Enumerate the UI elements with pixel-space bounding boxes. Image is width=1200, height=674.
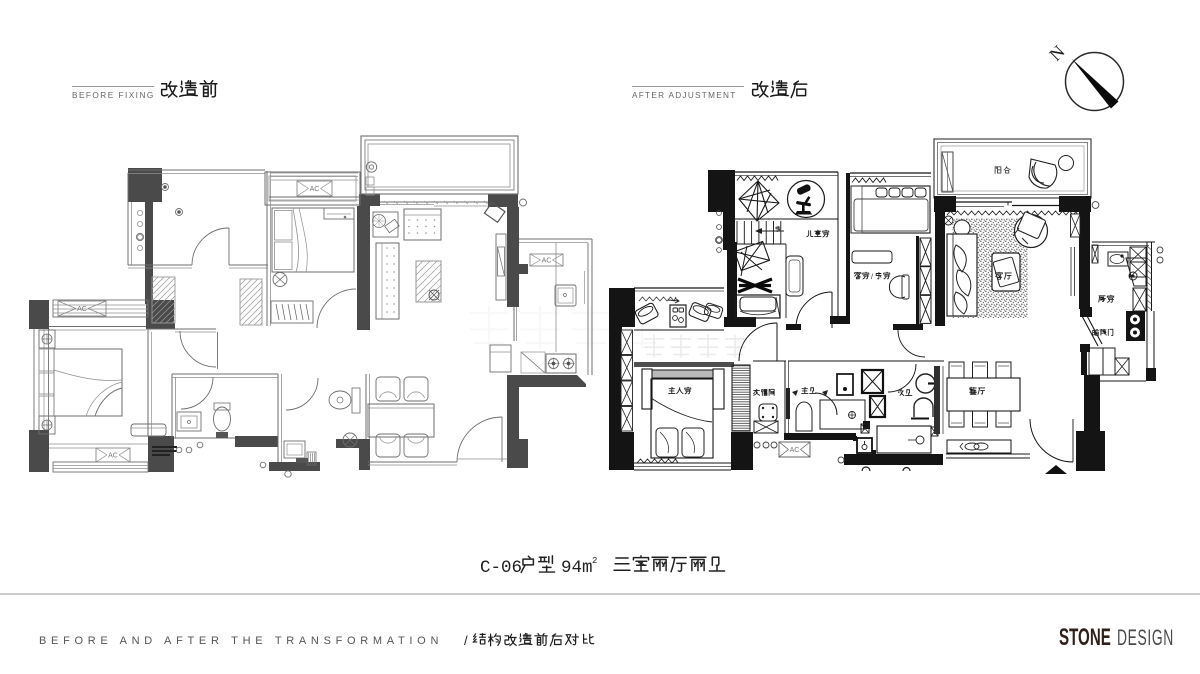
svg-text:AC: AC bbox=[108, 453, 118, 460]
svg-text:AFTER ADJUSTMENT: AFTER ADJUSTMENT bbox=[632, 91, 737, 100]
svg-text:BEFORE FIXING: BEFORE FIXING bbox=[72, 91, 155, 100]
svg-text:2: 2 bbox=[592, 556, 597, 566]
svg-text:94m: 94m bbox=[561, 558, 593, 578]
svg-text:AC: AC bbox=[77, 306, 87, 313]
svg-text:STONE: STONE bbox=[1059, 625, 1111, 651]
svg-text:AC: AC bbox=[542, 258, 552, 265]
svg-text:BEFORE AND AFTER THE TRANSFORM: BEFORE AND AFTER THE TRANSFORMATION bbox=[39, 635, 443, 647]
svg-text:C-06: C-06 bbox=[480, 558, 522, 578]
svg-text:AC: AC bbox=[310, 186, 320, 193]
svg-text:AC: AC bbox=[790, 447, 800, 454]
svg-text:DESIGN: DESIGN bbox=[1117, 625, 1174, 650]
svg-text:/: / bbox=[464, 633, 468, 648]
svg-text:/: / bbox=[871, 274, 873, 281]
